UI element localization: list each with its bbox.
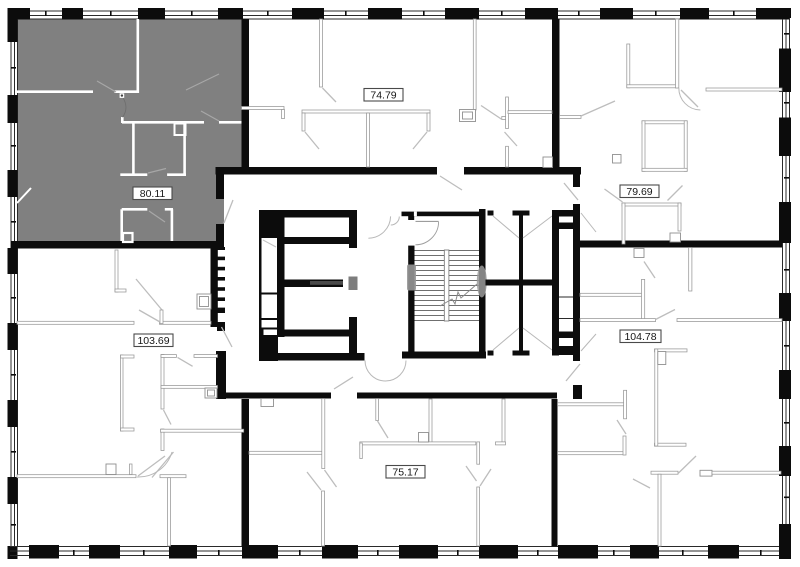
svg-text:79.69: 79.69: [626, 186, 652, 198]
svg-text:80.11: 80.11: [140, 188, 166, 200]
svg-text:103.69: 103.69: [137, 335, 169, 347]
svg-text:74.79: 74.79: [370, 90, 396, 102]
svg-text:75.17: 75.17: [392, 467, 418, 479]
svg-text:104.78: 104.78: [624, 331, 656, 343]
